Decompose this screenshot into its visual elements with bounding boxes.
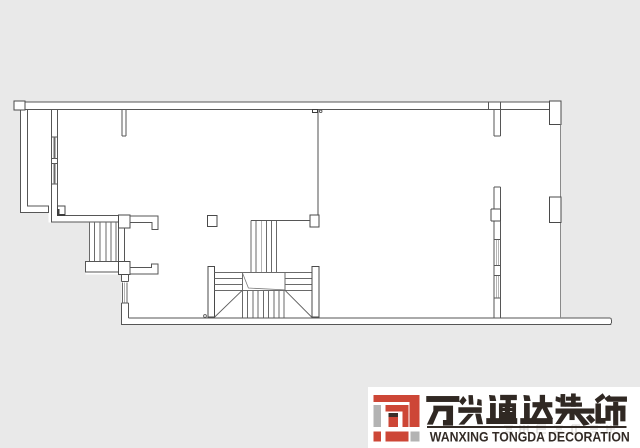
svg-text:WANXING TONGDA DECORATION: WANXING TONGDA DECORATION: [430, 429, 630, 445]
